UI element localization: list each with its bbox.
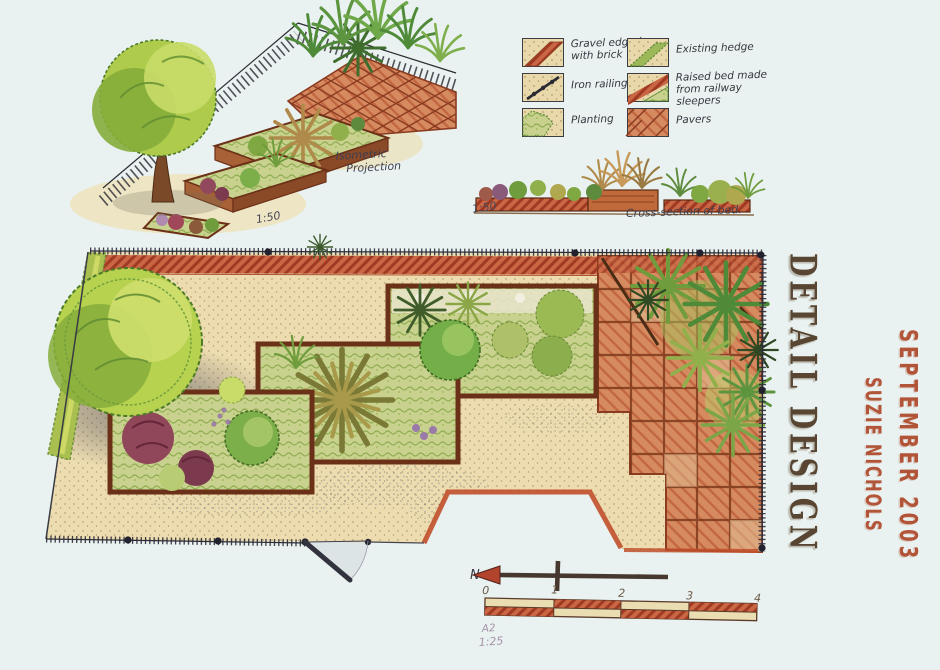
- garden-design-sheet: { "titles": { "main": "DETAIL DESIGN", "…: [0, 0, 940, 670]
- existing-hedge-swatch-icon: [627, 38, 669, 67]
- plan-view: [0, 240, 780, 572]
- scale-tick-label: 1: [551, 583, 558, 596]
- designer-name: SUZIE NICHOLS: [860, 377, 886, 533]
- scale-tick-label: 0: [482, 584, 489, 597]
- sheet-title: DETAIL DESIGN: [781, 253, 823, 553]
- legend-label: Existing hedge: [676, 41, 766, 56]
- scale-tick-label: 3: [686, 589, 693, 602]
- legend-item-gravel-brick: Gravel edged with brick: [522, 38, 643, 67]
- sheet-size-note: A2: [480, 622, 496, 635]
- legend-item-pavers: Pavers: [627, 108, 756, 137]
- sheet-date: SEPTEMBER 2003: [893, 329, 922, 562]
- isometric-caption: Isometric Projection: [335, 147, 401, 176]
- round-shrub: [420, 320, 480, 380]
- cross-section-caption: Cross-section of bed.: [626, 204, 742, 221]
- specimen-tree: [48, 268, 202, 416]
- plan-scale-note: 1:25: [478, 634, 504, 649]
- house-recess-brick-edging: [424, 492, 621, 548]
- legend-item-existing-hedge: Existing hedge: [627, 38, 766, 67]
- railway-sleepers-swatch-icon: [627, 73, 669, 102]
- gravel-brick-swatch-icon: [522, 38, 564, 67]
- pavers-swatch-icon: [627, 108, 669, 137]
- scale-bar: 0 1 2 3 4: [482, 582, 762, 621]
- planting-swatch-icon: [522, 108, 564, 137]
- isometric-view: [58, 6, 478, 244]
- north-arrow: N: [470, 561, 668, 591]
- iron-railings-swatch-icon: [522, 73, 564, 102]
- legend-item-railway-sleepers: Raised bed made from railway sleepers: [627, 73, 784, 106]
- garden-gate: [305, 541, 424, 581]
- small-shrub: [219, 377, 245, 403]
- scale-tick-label: 2: [618, 587, 625, 600]
- legend-label: Pavers: [676, 113, 756, 128]
- legend: Gravel edged with brick Iron railings Pl…: [516, 30, 794, 146]
- scale-tick-label: 4: [754, 592, 761, 605]
- legend-label: Raised bed made from railway sleepers: [675, 69, 784, 108]
- north-arrow-and-scale-bar: N 0 1 2 3 4 A2 1:25: [452, 550, 782, 655]
